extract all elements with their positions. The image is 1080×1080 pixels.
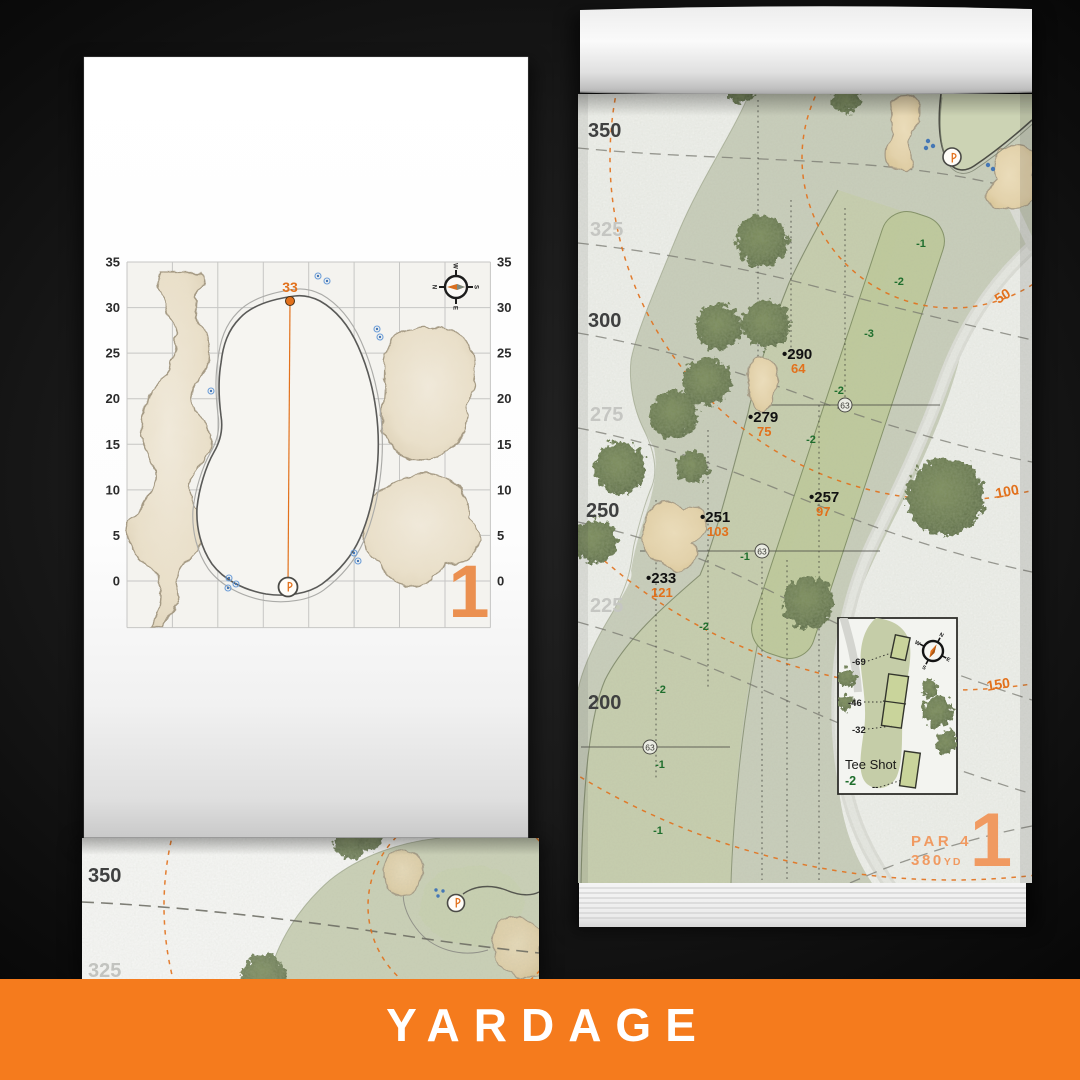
svg-text:-1: -1 bbox=[740, 551, 750, 563]
svg-text:25: 25 bbox=[106, 346, 120, 361]
svg-text:N: N bbox=[431, 285, 437, 289]
svg-text:20: 20 bbox=[106, 391, 120, 406]
svg-text:15: 15 bbox=[106, 437, 120, 452]
svg-text:-2: -2 bbox=[806, 434, 816, 446]
svg-text:-3: -3 bbox=[864, 328, 874, 340]
svg-text:-1: -1 bbox=[916, 238, 926, 250]
svg-text:PAR 4: PAR 4 bbox=[911, 833, 972, 850]
svg-text:0: 0 bbox=[113, 574, 120, 589]
svg-text:-2: -2 bbox=[656, 684, 666, 696]
svg-text:1: 1 bbox=[448, 550, 489, 633]
svg-text:S: S bbox=[473, 285, 479, 289]
svg-text:75: 75 bbox=[757, 424, 771, 439]
svg-text:Tee Shot: Tee Shot bbox=[845, 757, 897, 772]
svg-text:35: 35 bbox=[106, 255, 120, 270]
svg-text:325: 325 bbox=[88, 960, 121, 982]
svg-text:30: 30 bbox=[497, 300, 511, 315]
svg-text:YARDAGE: YARDAGE bbox=[386, 999, 710, 1051]
svg-text:-69: -69 bbox=[852, 657, 866, 668]
svg-text:-2: -2 bbox=[845, 774, 856, 788]
svg-text:-2: -2 bbox=[894, 276, 904, 288]
svg-text:E: E bbox=[452, 306, 458, 310]
svg-text:30: 30 bbox=[106, 300, 120, 315]
svg-text:0: 0 bbox=[497, 574, 504, 589]
svg-text:5: 5 bbox=[497, 528, 504, 543]
svg-text:63: 63 bbox=[840, 401, 850, 411]
svg-text:33: 33 bbox=[282, 279, 298, 295]
svg-text:-2: -2 bbox=[699, 621, 709, 633]
svg-text:20: 20 bbox=[497, 391, 511, 406]
svg-text:64: 64 bbox=[791, 361, 806, 376]
svg-text:-2: -2 bbox=[834, 385, 844, 397]
svg-text:25: 25 bbox=[497, 346, 511, 361]
svg-text:350: 350 bbox=[588, 120, 621, 142]
svg-text:-46: -46 bbox=[848, 698, 862, 709]
svg-text:--: -- bbox=[872, 782, 878, 793]
svg-text:200: 200 bbox=[588, 692, 621, 714]
svg-text:63: 63 bbox=[757, 547, 767, 557]
svg-text:1: 1 bbox=[970, 798, 1012, 883]
svg-text:-32: -32 bbox=[852, 725, 866, 736]
svg-text:W: W bbox=[452, 263, 458, 269]
svg-text:225: 225 bbox=[590, 595, 623, 617]
svg-text:-1: -1 bbox=[653, 825, 663, 837]
svg-text:121: 121 bbox=[651, 585, 673, 600]
svg-text:10: 10 bbox=[106, 482, 120, 497]
svg-text:15: 15 bbox=[497, 437, 511, 452]
svg-text:275: 275 bbox=[590, 404, 623, 426]
svg-text:350: 350 bbox=[88, 865, 121, 887]
svg-text:103: 103 bbox=[707, 524, 729, 539]
svg-text:325: 325 bbox=[590, 219, 623, 241]
svg-text:10: 10 bbox=[497, 482, 511, 497]
svg-text:5: 5 bbox=[113, 528, 120, 543]
svg-text:35: 35 bbox=[497, 255, 511, 270]
svg-text:250: 250 bbox=[586, 500, 619, 522]
svg-text:97: 97 bbox=[816, 504, 830, 519]
svg-text:-1: -1 bbox=[655, 759, 665, 771]
svg-text:300: 300 bbox=[588, 310, 621, 332]
svg-text:63: 63 bbox=[645, 743, 655, 753]
